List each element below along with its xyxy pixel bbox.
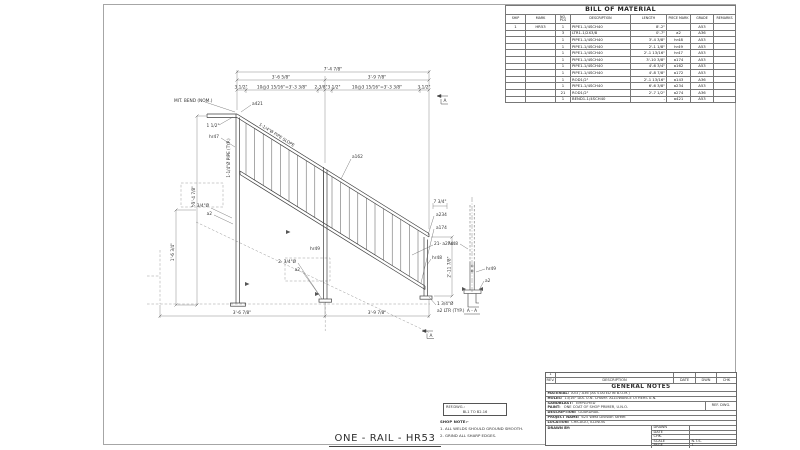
page-cell-value: 1 [690,444,736,448]
note-miter-bend: MIT. BEND (NOM.) [174,98,213,104]
bom-cell: a421 [667,96,691,103]
drawn-cell-value [690,426,736,430]
bom-cell [506,83,526,90]
bom-cell [714,89,736,96]
material-value: A53 / A36 (AS STATED IN B.O.M.) [571,392,630,396]
bom-cell [506,37,526,44]
revision-desc-cell [556,373,674,377]
bom-row: 21ROD1/2"2'-7 1/2"a274A36 [506,89,736,96]
dim-end-left: 3 1/2" [235,85,248,91]
drawing-labels: 7'-4 7/8" 3'-6 5/8" 3'-9 7/8" 3 1/2" 10@… [170,67,496,340]
dim-overall-top: 7'-4 7/8" [324,67,342,73]
bom-cell: 1 [556,43,571,50]
bom-cell: 1 [556,56,571,63]
bom-cell [714,70,736,77]
bom-cell: - [631,96,667,103]
bom-cell: LTR1-1/2X3/8 [571,30,631,37]
bom-cell: 3'-4 3/8" [631,37,667,44]
description-label: DESCRIPTION: [548,411,577,415]
bom-row: 1ROD1/2"2'-1 13/16"a143A36 [506,76,736,83]
detail-a2-label: a2 [485,278,491,284]
bom-cell [506,76,526,83]
bom-row: 1PIPE1-1/4SCH402'-1 1/8"hr49A53 [506,43,736,50]
bom-cell [714,24,736,31]
callout-a234: a234 [436,212,447,218]
callout-hr49: hr49 [310,246,320,252]
bom-cell: HR53 [526,24,556,31]
bom-header-remarks: REMARKS [714,15,736,24]
bom-row: 1PIPE1-1/4SCH406'-6 3/8"a234A53 [506,83,736,90]
bom-cell [714,43,736,50]
bom-cell: A53 [691,50,714,57]
bom-cell [526,50,556,57]
bom-cell [506,43,526,50]
bom-cell: BEND1-1/4SCH40 [571,96,631,103]
bom-cell [526,30,556,37]
bom-cell: A53 [691,96,714,103]
bom-cell [714,50,736,57]
detail-hr49-label: hr49 [486,266,496,272]
general-notes-row: GENERAL NOTES [546,384,736,392]
finish-row: SANDBLAST: EMPLOYED PAINT: ONE COAT OF S… [546,402,736,411]
holes-label: HOLES: [548,397,563,401]
bom-cell: 21 [556,89,571,96]
bom-cell [714,56,736,63]
bom-cell: PIPE1-1/4SCH40 [571,50,631,57]
dim-top-left: 3'-6 5/8" [272,75,290,81]
bom-cell [506,89,526,96]
bom-cell: 2'-7 1/2" [631,89,667,96]
shop-note-title: SHOP NOTE:- [440,418,523,425]
bill-of-material-table: BILL OF MATERIAL SHIP MARK NO. PCS DESCR… [505,5,736,103]
bom-cell: 0'-7" [631,30,667,37]
date-cell-value [690,431,736,435]
location-label: LOCATION: [548,421,570,425]
bom-cell: hr49 [667,43,691,50]
description-col-header: DESCRIPTION [556,378,674,383]
bom-cell: 4'-8 7/8" [631,70,667,77]
bom-cell: 1 [556,63,571,70]
bom-cell [714,96,736,103]
bom-cell [526,37,556,44]
bom-cell: 1 [556,37,571,44]
section-marker-bottom-label: A [430,333,433,339]
bom-row: 1PIPE1-1/4SCH403'-4 3/8"hr48A53 [506,37,736,44]
bom-cell [526,70,556,77]
revision-number: 1 [546,373,556,377]
bom-cell: PIPE1-1/4SCH40 [571,63,631,70]
bom-cell [526,76,556,83]
drawn-by-label: DRAWN BY: [548,427,571,431]
bom-cell [714,83,736,90]
bom-cell: a2 [667,30,691,37]
ref-dwg-cell: REF. DWG. [706,402,736,410]
bom-cell: hr48 [667,37,691,44]
bom-header-description: DESCRIPTION [571,15,631,24]
dim-spacing-left: 10@3 15/16"=3'-3 3/8" [257,85,307,91]
bom-cell: PIPE1-1/4SCH40 [571,70,631,77]
bom-cell [526,43,556,50]
bom-cell: a172 [667,70,691,77]
scale-cell-value: N.T.S. [690,440,736,444]
rev-col-header: REV. [546,378,556,383]
bom-cell: a174 [667,56,691,63]
bom-cell [526,96,556,103]
signature-row: DRAWN BY: DRAWN DATE CHK. SCALEN.T.S. PA… [546,426,736,448]
general-notes-title: GENERAL NOTES [546,384,736,391]
dim-mid-a: 2 3/8" [315,85,328,91]
location-value: CHICAGO, ILLINOIS [571,421,605,425]
bom-header-piece-mark: PIECE MARK [667,15,691,24]
bom-cell: A36 [691,76,714,83]
title-block: 1 REV. DESCRIPTION DATE DWN CHK GENERAL … [545,372,737,446]
chk-col-header: CHK [717,378,736,383]
material-label: MATERIAL: [548,392,570,396]
bom-row: 1BEND1-1/4SCH40-a421A53 [506,96,736,103]
bom-cell: 2'-1 13/16" [631,76,667,83]
bom-cell [506,50,526,57]
bom-cell: A53 [691,43,714,50]
bom-cell: A53 [691,56,714,63]
bom-cell: 3 [556,30,571,37]
bom-cell: A36 [691,30,714,37]
bom-cell: PIPE1-1/4SCH40 [571,37,631,44]
stair-ghost-lines [147,183,430,333]
project-value: 625 West Division Street [581,416,625,420]
bom-cell: 1 [556,76,571,83]
bom-cell: PIPE1-1/4SCH40 [571,43,631,50]
bom-cell: 1 [556,83,571,90]
label-slope-pipe: 1-1/4"Ø PIPE SLOPE [258,122,296,148]
label-post-pipe: 1-1/4"Ø PIPE (TYP.) [226,138,231,178]
bom-cell [526,83,556,90]
callout-hr47: hr47 [209,134,219,140]
dwn-col-header: DWN [696,378,717,383]
description-value: GUARDRAIL [578,411,599,415]
revision-date-cell [674,373,696,377]
page-cell-label: PAGE [652,444,690,448]
bom-header-length: LENGTH [631,15,667,24]
revision-chk-cell [717,373,736,377]
bom-cell [667,24,691,31]
bom-cell: PIPE1-1/4SCH40 [571,83,631,90]
bom-header-row: SHIP MARK NO. PCS DESCRIPTION LENGTH PIE… [506,15,736,24]
bom-cell: 1 [506,24,526,31]
revision-dwn-cell [696,373,717,377]
ref-dwg-box: REF.DWG.: BL1 TO B2.16 [443,403,507,416]
bom-cell: 4'-6 3/4" [631,63,667,70]
bom-cell: 6'-6 3/8" [631,83,667,90]
bom-cell: A53 [691,37,714,44]
bom-cell [526,89,556,96]
bom-cell: PIPE1-1/4SCH40 [571,56,631,63]
approval-grid: DRAWN DATE CHK. SCALEN.T.S. PAGE1 [652,426,736,448]
railing-geometry [207,114,432,306]
bom-row: 1HR531PIPE1-1/4SCH408'-2"A53 [506,24,736,31]
callout-mid-plate: a2 [295,267,301,273]
bom-row: 1PIPE1-1/4SCH404'-8 7/8"a172A53 [506,70,736,77]
bom-cell [714,30,736,37]
bom-title: BILL OF MATERIAL [506,6,736,15]
bom-row: 1PIPE1-1/4SCH402'-1 13/16"hr47A53 [506,50,736,57]
dim-bottom-right: 3'-9 7/8" [368,310,386,316]
bom-cell [506,30,526,37]
bom-cell [526,56,556,63]
bom-cell: 2'-1 1/8" [631,43,667,50]
dim-left-height: 3'-4 7/8" [191,186,197,204]
bom-row: 1PIPE1-1/4SCH403'-10 3/8"a174A53 [506,56,736,63]
dim-left-lower: 1'-6 3/4" [170,243,176,261]
bom-cell: 8'-2" [631,24,667,31]
bom-cell: 1 [556,50,571,57]
bom-cell: a274 [667,89,691,96]
dim-rail-end: 7 3/4" [434,199,447,205]
bom-cell: A53 [691,83,714,90]
bom-cell [526,63,556,70]
callout-left-plate: a2 [207,211,213,217]
bom-cell [714,76,736,83]
bom-cell: ROD1/2" [571,76,631,83]
bom-header-mark: MARK [526,15,556,24]
callout-hr48: hr48 [432,255,442,261]
bom-cell [506,96,526,103]
bom-cell: 1 [556,96,571,103]
dim-top-right: 3'-9 7/8" [368,75,386,81]
dim-bottom-left: 3'-6 7/8" [233,310,251,316]
ref-dwg-value: BL1 TO B2.16 [446,410,504,415]
bom-cell [506,63,526,70]
bom-header-pcs: NO. PCS [556,15,571,24]
bom-row: 3LTR1-1/2X3/80'-7"a2A36 [506,30,736,37]
bom-cell: ROD1/2" [571,89,631,96]
bom-cell: A53 [691,70,714,77]
bom-cell [714,37,736,44]
callout-left-holes: 2- 3/4"Ø [191,202,210,209]
bom-cell: A36 [691,89,714,96]
bom-cell: a143 [667,76,691,83]
bom-cell [506,56,526,63]
bom-cell: 3'-10 3/8" [631,56,667,63]
bom-cell: a234 [667,83,691,90]
paint-label: PAINT: [548,405,561,409]
callout-base-hole: 1 3/4"Ø [437,300,454,307]
callout-a174: a174 [436,225,447,231]
callout-a421: a421 [252,101,263,107]
project-label: PROJECT NAME: [548,416,580,420]
dim-mid-b: 3 1/2" [328,85,341,91]
bom-row: 1PIPE1-1/4SCH404'-6 3/4"a162A53 [506,63,736,70]
dim-bend-offset: 1 1/2" [207,123,220,129]
bom-body: 1HR531PIPE1-1/4SCH408'-2"A533LTR1-1/2X3/… [506,24,736,103]
callout-a162: a162 [352,154,363,160]
drawing-sheet-page: 7'-4 7/8" 3'-6 5/8" 3'-9 7/8" 3 1/2" 10@… [0,0,800,450]
dim-spacing-right: 10@3 15/16"=3'-3 3/8" [352,85,402,91]
bom-cell: hr47 [667,50,691,57]
bom-cell [506,70,526,77]
date-col-header: DATE [674,378,696,383]
bom-cell: 2'-1 13/16" [631,50,667,57]
callout-base-note: a2 LTR (TYP.) [437,308,465,314]
section-title: A - A [467,308,477,314]
bom-cell: 1 [556,70,571,77]
bom-header-ship: SHIP [506,15,526,24]
section-detail-aa [462,197,483,314]
sheet-title-wrap: ONE - RAIL - HR53 [295,426,475,447]
bom-cell: a162 [667,63,691,70]
bom-header-grade: GRADE [691,15,714,24]
holes-value: 13/16" DIA. U.N. CHAMF. ALLOWANCE OTHERS… [564,397,656,401]
bom-cell: A53 [691,63,714,70]
bom-cell: PIPE1-1/4SCH40 [571,24,631,31]
dim-post-height: 2'-11 7/8" [447,256,453,277]
sheet-title: ONE - RAIL - HR53 [329,433,442,447]
paint-value: ONE COAT OF SHOP PRIMER, U.N.O. [564,405,628,409]
bom-cell: 1 [556,24,571,31]
ref-dwg-label: REF.DWG.: [446,405,465,409]
bom-cell: A53 [691,24,714,31]
callout-mid-holes: 2- 3/4"Ø [278,258,297,265]
section-marker-top-label: A [444,98,447,104]
bom-cell [714,63,736,70]
detail-hr48-label: hr48 [448,241,458,247]
dim-end-right: 3 1/2" [418,85,431,91]
